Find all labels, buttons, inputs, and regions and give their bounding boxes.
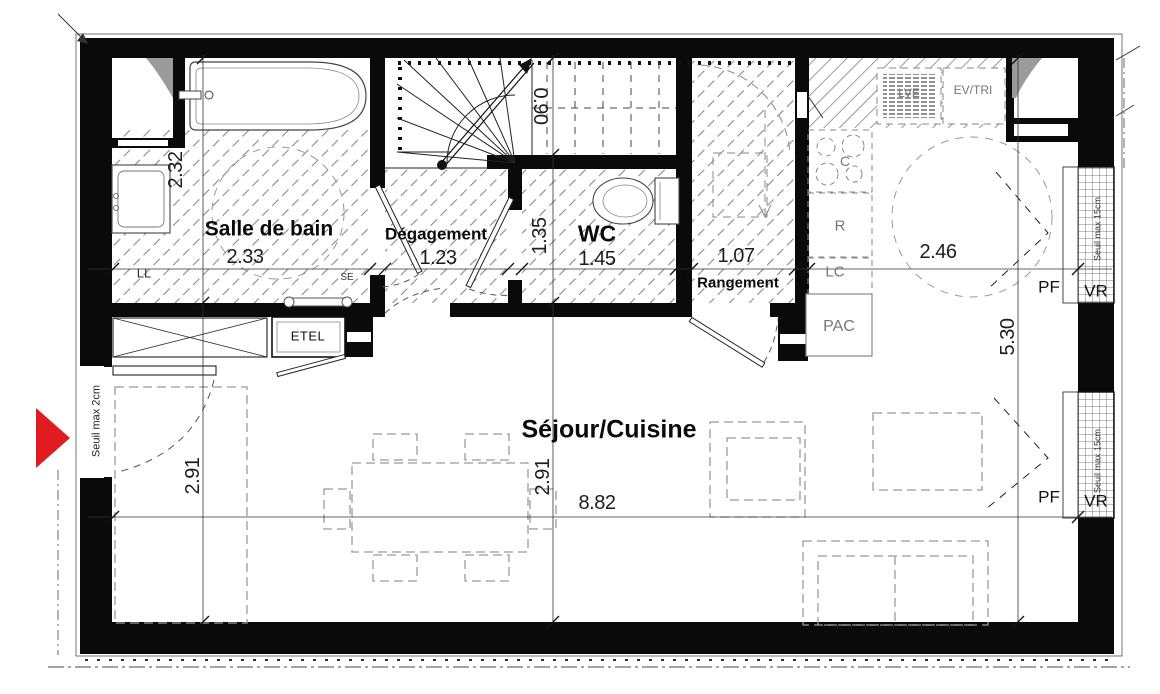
wall-storage-south bbox=[770, 303, 810, 317]
stair-arrow-head bbox=[519, 58, 532, 74]
window-upper bbox=[1078, 167, 1114, 303]
sink-box bbox=[943, 68, 1005, 124]
chair bbox=[324, 489, 350, 529]
washbasin bbox=[112, 165, 170, 233]
furniture bbox=[115, 387, 988, 625]
wall-bottom bbox=[80, 622, 1114, 654]
fridge-box bbox=[808, 193, 872, 257]
dining-table bbox=[352, 463, 528, 552]
staircase bbox=[385, 58, 676, 170]
wall-left-upper bbox=[80, 38, 112, 366]
winder-arc bbox=[447, 95, 515, 163]
floor-plan: Salle de bain 2.33 2.32 LL SE Dégagement… bbox=[0, 0, 1160, 694]
hallway-door-leaf bbox=[277, 355, 346, 377]
cooktop-burners bbox=[816, 135, 864, 185]
towel-dryer bbox=[284, 297, 352, 307]
wall-wc-west-lower bbox=[508, 280, 522, 317]
storage-door-leaf bbox=[689, 317, 765, 367]
toilet-cistern bbox=[655, 178, 679, 224]
entry-furniture-zone bbox=[115, 387, 247, 623]
bathtub-faucet bbox=[179, 91, 201, 99]
wall-bathroom-east-upper bbox=[370, 55, 385, 188]
floor-plan-drawing bbox=[0, 0, 1160, 694]
entry-closets bbox=[113, 317, 345, 357]
wall-right-upper bbox=[1078, 38, 1114, 167]
window-lower bbox=[1078, 392, 1114, 518]
wall-hall-wc-south bbox=[450, 303, 692, 317]
chair bbox=[465, 555, 509, 581]
window-upper-frame bbox=[1063, 167, 1078, 303]
cooktop-box bbox=[808, 130, 872, 192]
lc-box bbox=[808, 258, 872, 295]
coffee-table bbox=[873, 413, 982, 490]
chair bbox=[373, 555, 417, 581]
winder-treads bbox=[397, 58, 515, 163]
window-lower-leaf-open bbox=[986, 398, 1048, 509]
storage-door-swing bbox=[764, 319, 778, 362]
chair bbox=[530, 489, 556, 529]
entrance-door-swing bbox=[118, 380, 214, 472]
wall-stairs-south bbox=[487, 155, 692, 169]
window-lower-frame bbox=[1063, 392, 1078, 518]
wall-right-lower bbox=[1078, 518, 1114, 622]
shaft-corner-right bbox=[1012, 58, 1042, 98]
armchair bbox=[710, 422, 805, 517]
armchair-seat bbox=[727, 438, 800, 500]
upper-treads-dashed bbox=[532, 62, 676, 154]
wall-right-middle bbox=[1078, 303, 1114, 392]
chair bbox=[465, 434, 509, 460]
entrance-door-leaf bbox=[113, 366, 216, 375]
electrical-panel-box bbox=[272, 317, 345, 357]
entrance-arrow-icon bbox=[36, 408, 70, 468]
storage-floor-hatch bbox=[692, 58, 795, 303]
heat-pump-box bbox=[806, 294, 872, 356]
chair bbox=[373, 434, 417, 460]
turning-circle-kitchen bbox=[892, 137, 1052, 297]
wall-top bbox=[80, 38, 1114, 58]
entrance-jamb-top bbox=[104, 358, 112, 367]
wc-fixtures bbox=[593, 178, 679, 224]
shaft-corner-left bbox=[146, 58, 173, 98]
entrance-jamb-bottom bbox=[104, 477, 112, 486]
stair-direction-line bbox=[437, 58, 534, 170]
